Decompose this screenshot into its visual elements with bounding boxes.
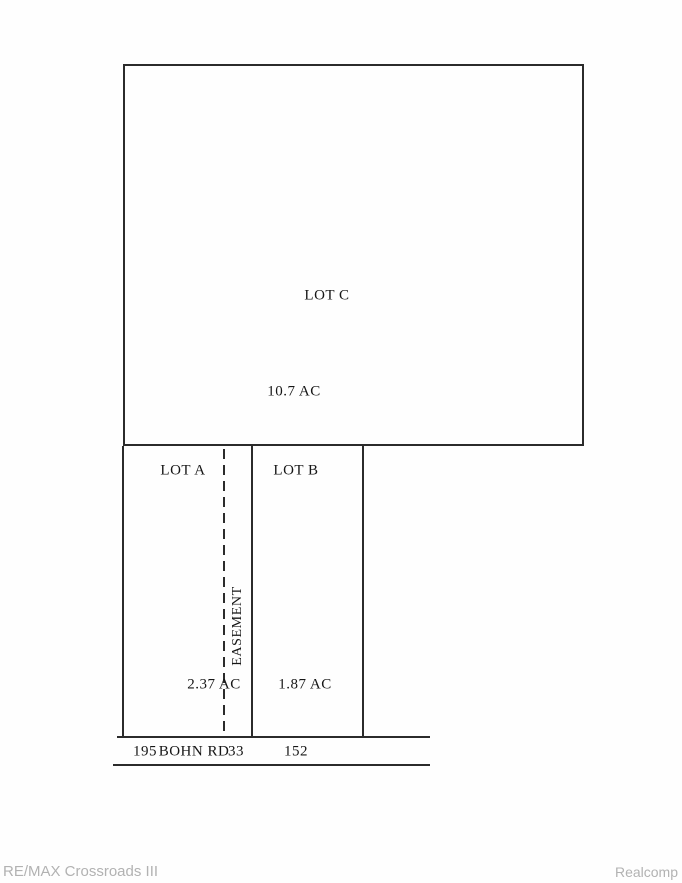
road-edge-line — [113, 764, 430, 766]
lot-a-label: LOT A — [160, 463, 205, 480]
mls-source-attribution: Realcomp — [615, 864, 678, 880]
road-name-label: BOHN RD — [159, 744, 230, 761]
lot-a-lot-b-divider-line — [251, 446, 253, 737]
lot-c-area-label: 10.7 AC — [267, 384, 321, 401]
lot-b-area-label: 1.87 AC — [278, 677, 332, 694]
plat-survey-page: LOT C 10.7 AC LOT A 2.37 AC LOT B 1.87 A… — [0, 0, 682, 883]
lots-south-boundary-line — [117, 736, 430, 738]
lot-c-label: LOT C — [304, 288, 349, 305]
lot-c-boundary — [123, 64, 584, 446]
lot-b-east-boundary-line — [362, 446, 364, 737]
easement-label: EASEMENT — [230, 586, 246, 665]
lot-a-area-label: 2.37 AC — [187, 677, 241, 694]
lot-b-label: LOT B — [273, 463, 318, 480]
lot-a-west-boundary-line — [122, 446, 124, 737]
brokerage-attribution: RE/MAX Crossroads III — [3, 863, 158, 880]
lot-b-frontage-dimension: 152 — [284, 744, 308, 761]
lot-a-frontage-dimension: 195 — [133, 744, 157, 761]
easement-width-dimension: 33 — [228, 744, 244, 761]
